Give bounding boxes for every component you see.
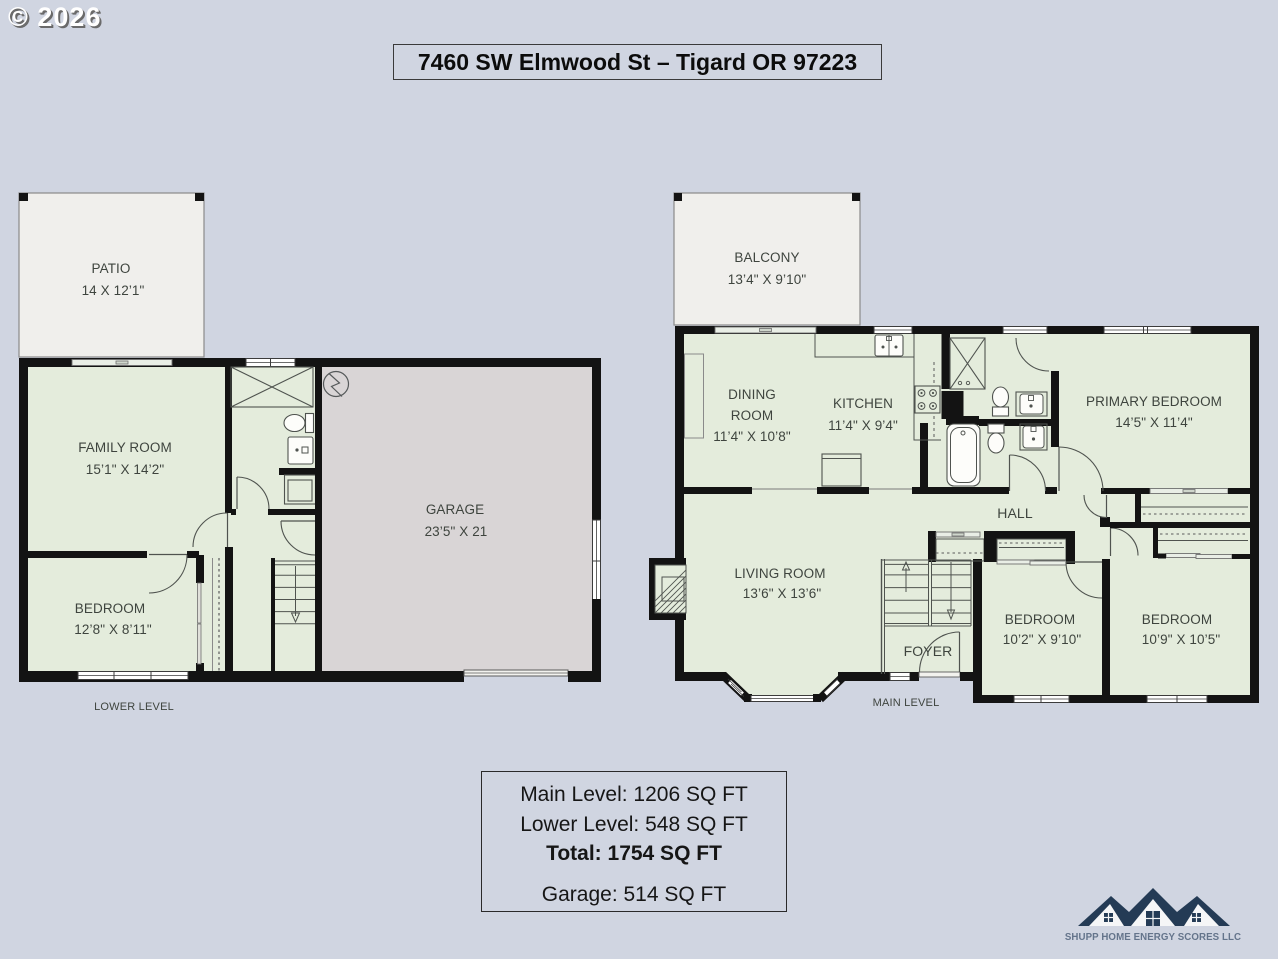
svg-text:13’6" X 13’6": 13’6" X 13’6": [743, 586, 822, 601]
svg-text:BALCONY: BALCONY: [734, 250, 799, 265]
svg-text:FAMILY ROOM: FAMILY ROOM: [78, 440, 172, 455]
svg-text:13’4" X 9’10": 13’4" X 9’10": [728, 272, 807, 287]
svg-text:KITCHEN: KITCHEN: [833, 396, 893, 411]
svg-text:PRIMARY BEDROOM: PRIMARY BEDROOM: [1086, 394, 1222, 409]
svg-text:DINING: DINING: [728, 387, 776, 402]
svg-text:GARAGE: GARAGE: [426, 502, 484, 517]
svg-text:14’5" X 11’4": 14’5" X 11’4": [1115, 415, 1193, 430]
svg-text:14 X 12’1": 14 X 12’1": [82, 283, 145, 298]
svg-text:PATIO: PATIO: [91, 261, 130, 276]
svg-text:MAIN LEVEL: MAIN LEVEL: [873, 697, 940, 709]
svg-text:HALL: HALL: [997, 505, 1033, 521]
svg-text:10’9" X 10’5": 10’9" X 10’5": [1142, 632, 1221, 647]
svg-text:BEDROOM: BEDROOM: [1142, 612, 1212, 627]
svg-text:SHUPP HOME ENERGY SCORES LLC: SHUPP HOME ENERGY SCORES LLC: [1065, 932, 1241, 943]
svg-text:BEDROOM: BEDROOM: [1005, 612, 1075, 627]
svg-text:12’8" X 8’11": 12’8" X 8’11": [74, 622, 152, 637]
svg-text:LIVING ROOM: LIVING ROOM: [734, 566, 825, 581]
svg-text:23’5" X 21: 23’5" X 21: [425, 524, 488, 539]
svg-text:BEDROOM: BEDROOM: [75, 601, 145, 616]
svg-text:15’1" X 14’2": 15’1" X 14’2": [86, 462, 165, 477]
svg-text:FOYER: FOYER: [904, 643, 953, 659]
svg-text:LOWER LEVEL: LOWER LEVEL: [94, 701, 174, 713]
svg-text:11’4" X 9’4": 11’4" X 9’4": [828, 418, 898, 433]
svg-text:10’2" X 9’10": 10’2" X 9’10": [1003, 632, 1082, 647]
svg-text:ROOM: ROOM: [731, 408, 773, 423]
svg-text:11’4" X 10’8": 11’4" X 10’8": [713, 429, 791, 444]
